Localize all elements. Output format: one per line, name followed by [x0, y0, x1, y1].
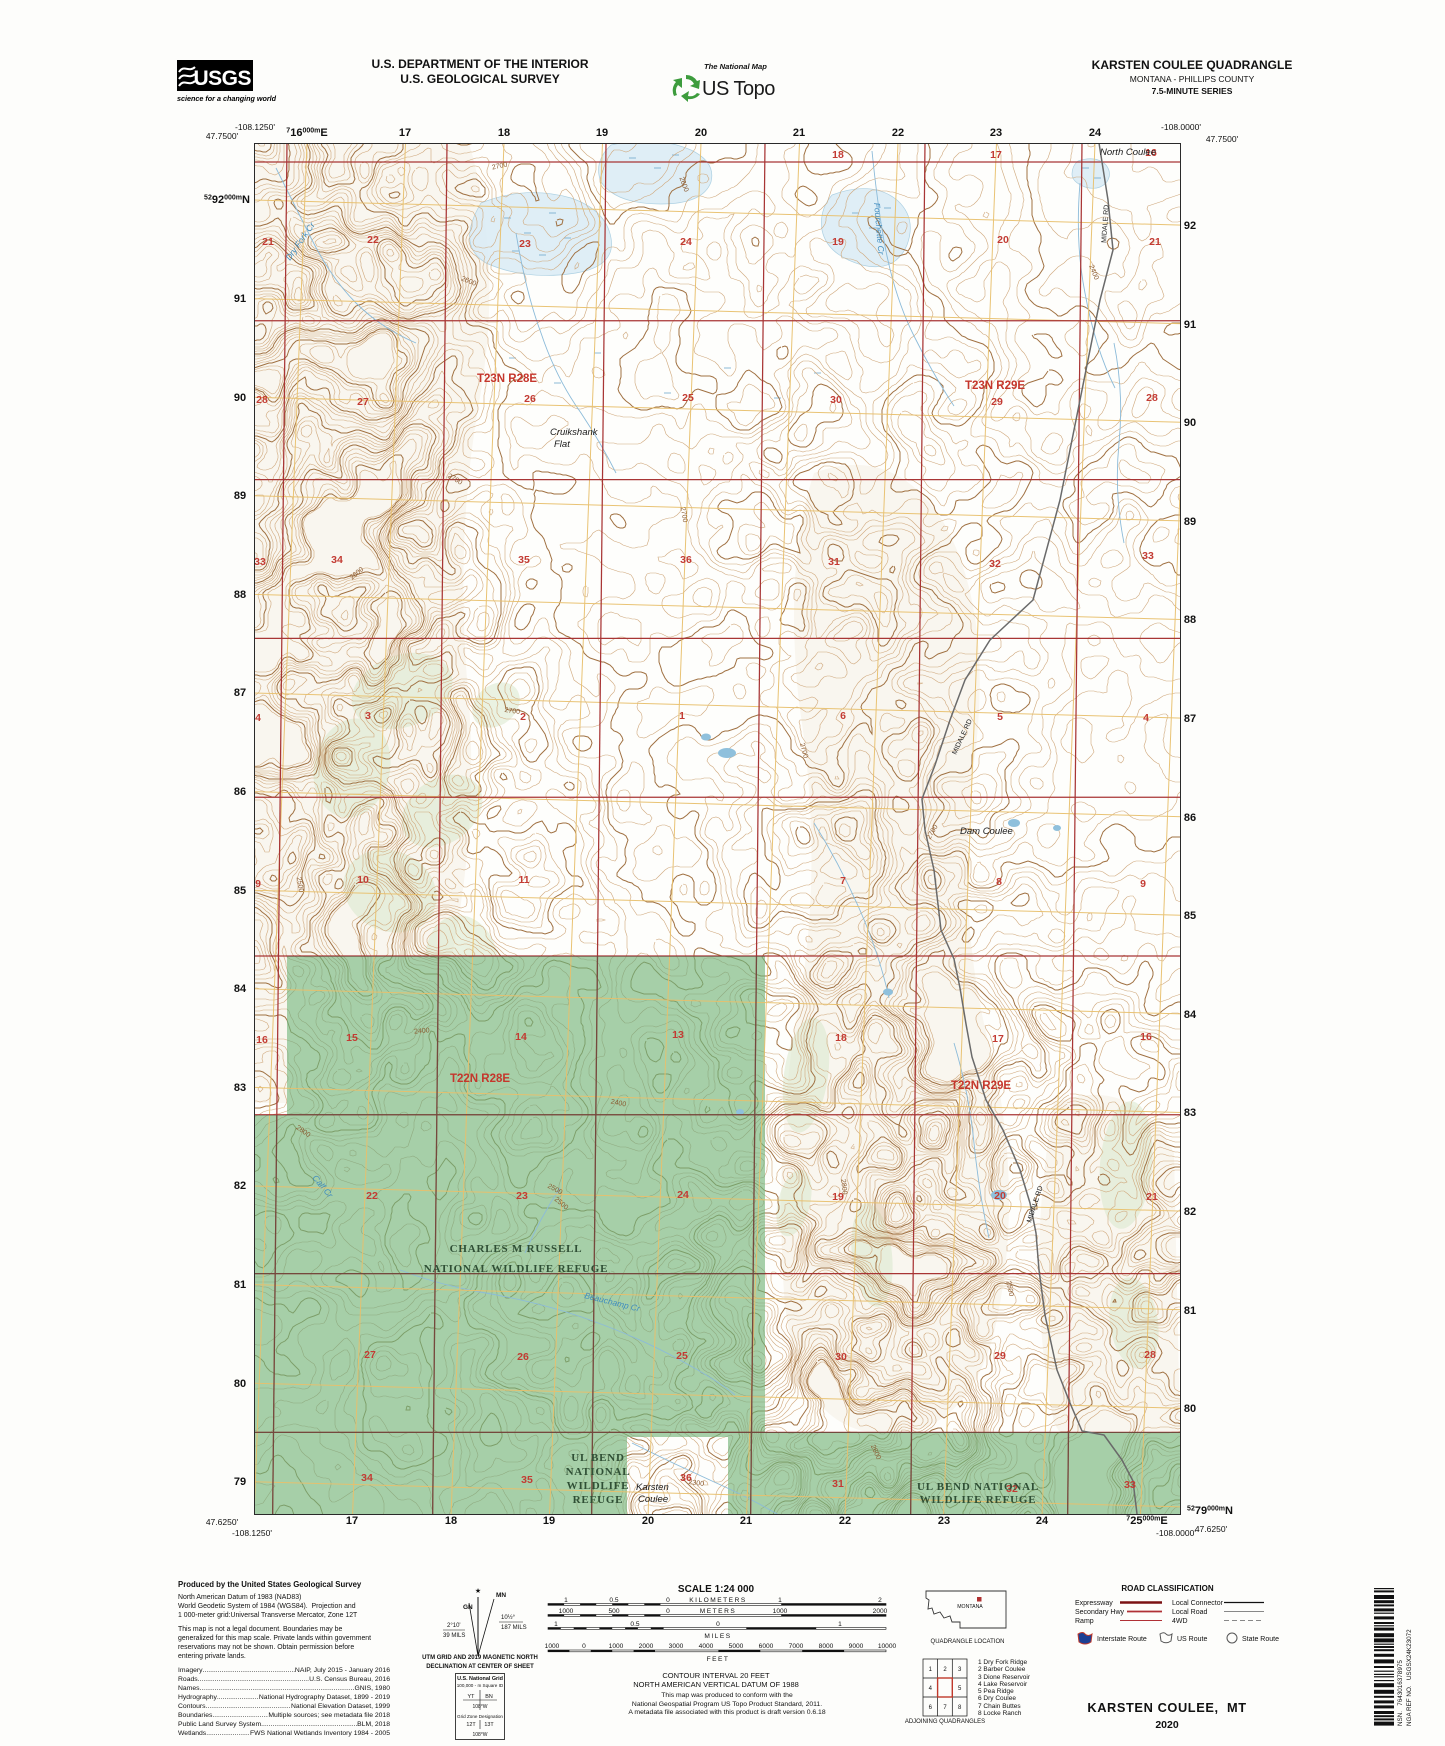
svg-text:21: 21 — [1146, 1191, 1158, 1203]
svg-text:12T: 12T — [466, 1722, 476, 1728]
svg-text:21: 21 — [262, 236, 274, 248]
svg-text:108°W: 108°W — [472, 1732, 487, 1738]
svg-text:Cruikshank: Cruikshank — [550, 427, 599, 438]
svg-text:Interstate Route: Interstate Route — [1097, 1636, 1147, 1643]
svg-text:7: 7 — [840, 875, 846, 887]
svg-text:T23N R29E: T23N R29E — [965, 380, 1025, 392]
svg-text:0: 0 — [666, 1608, 670, 1615]
svg-text:0: 0 — [666, 1597, 670, 1604]
svg-text:9: 9 — [1140, 878, 1146, 890]
svg-text:7000: 7000 — [789, 1643, 804, 1650]
svg-text:16: 16 — [256, 1034, 268, 1046]
svg-text:Dam Coulee: Dam Coulee — [960, 826, 1013, 837]
svg-text:NATIONAL WILDLIFE REFUGE: NATIONAL WILDLIFE REFUGE — [424, 1263, 608, 1275]
svg-text:6: 6 — [929, 1705, 933, 1711]
svg-text:MILES: MILES — [704, 1633, 731, 1640]
svg-text:1: 1 — [564, 1597, 568, 1604]
svg-text:22: 22 — [366, 1190, 378, 1202]
svg-text:Ramp: Ramp — [1075, 1618, 1094, 1625]
svg-text:3000: 3000 — [669, 1643, 684, 1650]
svg-text:MONTANA: MONTANA — [957, 1604, 983, 1610]
svg-text:31: 31 — [832, 1478, 844, 1490]
svg-text:4: 4 — [255, 712, 261, 724]
svg-text:34: 34 — [361, 1472, 373, 1484]
svg-text:Secondary Hwy: Secondary Hwy — [1075, 1609, 1125, 1616]
svg-text:17: 17 — [990, 149, 1002, 161]
svg-text:18: 18 — [835, 1032, 847, 1044]
svg-text:9: 9 — [255, 878, 261, 890]
svg-text:NATIONAL: NATIONAL — [566, 1466, 631, 1478]
svg-text:4WD: 4WD — [1172, 1618, 1188, 1625]
svg-text:T22N R29E: T22N R29E — [951, 1080, 1011, 1092]
svg-text:1: 1 — [679, 710, 685, 722]
svg-text:14: 14 — [515, 1031, 527, 1043]
svg-text:32: 32 — [989, 558, 1001, 570]
svg-text:Karsten: Karsten — [636, 1482, 669, 1493]
svg-text:5: 5 — [997, 711, 1003, 723]
svg-text:20: 20 — [997, 234, 1009, 246]
svg-text:MN: MN — [496, 1592, 506, 1599]
svg-text:3: 3 — [958, 1667, 962, 1673]
svg-text:22: 22 — [367, 234, 379, 246]
svg-text:U.S. National Grid: U.S. National Grid — [457, 1676, 503, 1682]
svg-text:1000: 1000 — [773, 1608, 788, 1615]
svg-text:Local Road: Local Road — [1172, 1609, 1208, 1616]
svg-text:2°10': 2°10' — [447, 1623, 461, 1629]
svg-text:16: 16 — [1140, 1031, 1152, 1043]
svg-text:6000: 6000 — [759, 1643, 774, 1650]
svg-text:11: 11 — [518, 874, 529, 886]
svg-text:US Route: US Route — [1177, 1636, 1207, 1643]
svg-text:13: 13 — [672, 1029, 684, 1041]
svg-text:29: 29 — [994, 1350, 1006, 1362]
svg-text:24: 24 — [677, 1189, 689, 1201]
svg-text:5: 5 — [958, 1686, 962, 1692]
svg-text:State Route: State Route — [1242, 1636, 1279, 1643]
svg-text:YT: YT — [468, 1694, 476, 1700]
svg-text:T22N R28E: T22N R28E — [450, 1073, 510, 1085]
svg-text:8: 8 — [996, 876, 1002, 888]
svg-text:2000: 2000 — [873, 1608, 888, 1615]
svg-text:BN: BN — [485, 1694, 493, 1700]
svg-text:0.5: 0.5 — [630, 1621, 639, 1628]
svg-text:CHARLES M RUSSELL: CHARLES M RUSSELL — [450, 1243, 583, 1255]
svg-text:Flat: Flat — [554, 439, 570, 450]
svg-text:8000: 8000 — [819, 1643, 834, 1650]
svg-text:2000: 2000 — [639, 1643, 654, 1650]
svg-text:26: 26 — [517, 1351, 529, 1363]
svg-text:NGA REF NO. USGSX24K23072: NGA REF NO. USGSX24K23072 — [1406, 1629, 1413, 1726]
svg-text:1000: 1000 — [609, 1643, 624, 1650]
svg-text:6: 6 — [840, 710, 846, 722]
svg-text:7: 7 — [943, 1705, 947, 1711]
svg-text:23: 23 — [516, 1190, 528, 1202]
svg-text:35: 35 — [518, 554, 530, 566]
svg-text:29: 29 — [991, 396, 1003, 408]
svg-text:UL BEND: UL BEND — [571, 1452, 625, 1464]
svg-text:108°W: 108°W — [472, 1704, 487, 1710]
svg-text:23: 23 — [519, 238, 531, 250]
svg-text:10½°: 10½° — [501, 1614, 516, 1621]
svg-text:25: 25 — [682, 392, 694, 404]
svg-text:30: 30 — [830, 394, 842, 406]
svg-text:100,000 - m Square ID: 100,000 - m Square ID — [457, 1683, 504, 1688]
svg-text:28: 28 — [256, 394, 268, 406]
svg-text:Expressway: Expressway — [1075, 1600, 1113, 1607]
svg-text:Local Connector: Local Connector — [1172, 1600, 1224, 1607]
svg-text:METERS: METERS — [700, 1608, 736, 1615]
svg-text:1: 1 — [778, 1597, 782, 1604]
svg-text:GN: GN — [463, 1604, 473, 1611]
svg-text:15: 15 — [346, 1032, 358, 1044]
svg-text:10000: 10000 — [878, 1643, 897, 1650]
svg-text:8: 8 — [958, 1705, 962, 1711]
svg-text:30: 30 — [835, 1351, 847, 1363]
svg-text:T23N R28E: T23N R28E — [477, 373, 537, 385]
svg-text:26: 26 — [524, 393, 536, 405]
svg-text:0: 0 — [716, 1621, 720, 1628]
svg-text:1000: 1000 — [559, 1608, 574, 1615]
svg-text:science for a changing world: science for a changing world — [177, 94, 277, 103]
svg-text:4000: 4000 — [699, 1643, 714, 1650]
svg-text:28: 28 — [1146, 392, 1158, 404]
svg-text:The National Map: The National Map — [704, 62, 767, 71]
svg-text:4: 4 — [1143, 712, 1149, 724]
svg-text:Grid Zone Designation: Grid Zone Designation — [457, 1714, 503, 1719]
svg-text:2: 2 — [943, 1667, 947, 1673]
svg-text:2: 2 — [520, 711, 526, 723]
svg-text:21: 21 — [1149, 236, 1161, 248]
svg-text:500: 500 — [608, 1608, 619, 1615]
svg-text:0.5: 0.5 — [609, 1597, 618, 1604]
svg-text:36: 36 — [680, 554, 692, 566]
svg-text:2: 2 — [878, 1597, 882, 1604]
svg-text:0: 0 — [582, 1643, 586, 1650]
svg-text:NSN. 7643016378975: NSN. 7643016378975 — [1397, 1660, 1404, 1726]
svg-text:★: ★ — [475, 1587, 481, 1595]
svg-text:3: 3 — [365, 710, 371, 722]
svg-text:39 MILS: 39 MILS — [443, 1633, 465, 1639]
svg-text:2400: 2400 — [414, 1027, 430, 1035]
svg-text:10: 10 — [357, 874, 369, 886]
svg-text:34: 34 — [331, 554, 343, 566]
svg-text:25: 25 — [676, 1350, 688, 1362]
svg-text:33: 33 — [1124, 1479, 1136, 1491]
svg-text:13T: 13T — [484, 1722, 494, 1728]
svg-text:20: 20 — [994, 1190, 1006, 1202]
svg-text:KILOMETERS: KILOMETERS — [689, 1597, 747, 1604]
svg-text:19: 19 — [832, 236, 844, 248]
svg-text:1: 1 — [838, 1621, 842, 1628]
svg-text:1: 1 — [554, 1621, 558, 1628]
svg-text:17: 17 — [992, 1033, 1004, 1045]
svg-text:1000: 1000 — [545, 1643, 560, 1650]
svg-text:UL BEND NATIONAL: UL BEND NATIONAL — [917, 1481, 1039, 1493]
svg-text:North Coulee: North Coulee — [1100, 147, 1156, 158]
svg-text:33: 33 — [1142, 550, 1154, 562]
svg-text:9000: 9000 — [849, 1643, 864, 1650]
svg-text:5000: 5000 — [729, 1643, 744, 1650]
svg-text:WILDLIFE: WILDLIFE — [567, 1480, 630, 1492]
svg-text:REFUGE: REFUGE — [573, 1494, 624, 1506]
svg-text:US Topo: US Topo — [702, 78, 775, 100]
svg-text:18: 18 — [832, 149, 844, 161]
svg-text:Coulee: Coulee — [638, 1494, 668, 1505]
svg-text:33: 33 — [254, 556, 266, 568]
svg-text:4: 4 — [929, 1686, 933, 1692]
svg-text:1: 1 — [929, 1667, 933, 1673]
svg-text:WILDLIFE REFUGE: WILDLIFE REFUGE — [920, 1494, 1037, 1506]
svg-text:35: 35 — [521, 1474, 533, 1486]
svg-text:27: 27 — [364, 1349, 376, 1361]
svg-text:FEET: FEET — [707, 1656, 730, 1663]
svg-text:187 MILS: 187 MILS — [501, 1625, 527, 1631]
svg-text:28: 28 — [1144, 1349, 1156, 1361]
svg-text:24: 24 — [680, 236, 692, 248]
svg-text:27: 27 — [357, 396, 369, 408]
svg-text:31: 31 — [828, 556, 840, 568]
svg-text:USGS: USGS — [193, 67, 251, 90]
